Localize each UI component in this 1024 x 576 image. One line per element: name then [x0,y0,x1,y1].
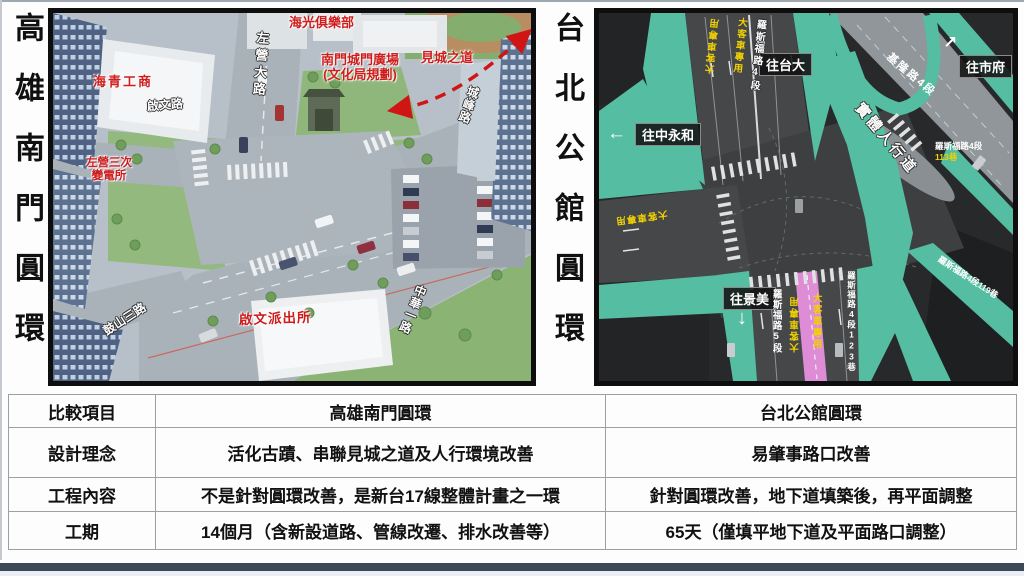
label-roosevelt-rd-5: 羅斯福路5段 [770,289,781,354]
west-arrow-icon: ← [607,123,626,144]
label-gate-plaza: 南門城門廣場(文化局規劃) [321,53,399,82]
label-lane-123: 羅斯福路4段123巷 [846,271,856,372]
label-gate-plaza-line1: 南門城門廣場 [321,52,399,67]
slide-bottom-margin [0,571,1024,576]
design-item: 設計理念 [9,428,156,478]
south-arrow-icon: ↓ [737,307,747,329]
direction-to-jingmei: 往景美 [723,287,776,310]
label-substation: 左營三次變電所 [86,157,132,183]
scope-kaohsiung: 不是針對圓環改善，是新台17線整體計畫之一環 [156,478,606,512]
table-header-row: 比較項目 高雄南門圓環 台北公館圓環 [9,395,1017,428]
direction-to-zhongyonghe: 往中永和 [635,123,701,146]
label-haiguang-club: 海光俱樂部 [289,16,354,31]
duration-taipei: 65天（僅填平地下道及平面路口調整） [606,512,1017,550]
comparison-table: 比較項目 高雄南門圓環 台北公館圓環 設計理念 活化古蹟、串聯見城之道及人行環境… [8,394,1017,550]
label-police-station: 啟文派出所 [239,310,312,328]
direction-to-ntu: 往台大 [759,53,812,76]
table-row-design: 設計理念 活化古蹟、串聯見城之道及人行環境改善 易肇事路口改善 [9,428,1017,478]
scope-item: 工程內容 [9,478,156,512]
label-haiqing-school: 海青工商 [93,75,153,90]
header-taipei: 台北公館圓環 [606,395,1017,428]
duration-kaohsiung: 14個月（含新設道路、管線改遷、排水改善等） [156,512,606,550]
label-lane-113: 羅斯福路4段113巷 [935,141,982,163]
design-kaohsiung: 活化古蹟、串聯見城之道及人行環境改善 [156,428,606,478]
slide-bottom-bar [0,563,1024,571]
label-bus-only-south-a: 大客車專用 [791,295,802,353]
direction-to-city-hall: 往市府 [959,55,1012,78]
right-panel-title: 台北公館圓環 [551,12,581,382]
left-panel-title: 高雄南門圓環 [11,12,41,382]
header-item: 比較項目 [9,395,156,428]
label-bus-only-south-b: 大客車專用 [810,293,821,351]
label-lane-113-road: 羅斯福路4段 [935,141,982,151]
table-row-duration: 工期 14個月（含新設道路、管線改遷、排水改善等） 65天（僅填平地下道及平面路… [9,512,1017,550]
design-taipei: 易肇事路口改善 [606,428,1017,478]
slide-top-border [0,0,1024,2]
duration-item: 工期 [9,512,156,550]
kaohsiung-render-image: 海光俱樂部 左營大路 南門城門廣場(文化局規劃) 見城之道 海青工商 啟文路 左… [48,8,536,386]
scope-taipei: 針對圓環改善，地下道填築後，再平面調整 [606,478,1017,512]
taipei-map-image: 往台大 ↗ 往市府 ← 往中永和 往景美 ↓ 羅斯福路4段 基隆路4段 實體人行… [594,8,1018,386]
label-substation-line2: 變電所 [92,170,127,182]
label-trail: 見城之道 [421,51,473,66]
header-kaohsiung: 高雄南門圓環 [156,395,606,428]
label-lane-113-number: 113巷 [935,152,957,162]
northeast-arrow-icon: ↗ [943,33,957,52]
slide: { "titles": { "left": "高雄南門圓環", "right":… [0,0,1024,576]
slide-left-border [0,0,2,560]
table-row-scope: 工程內容 不是針對圓環改善，是新台17線整體計畫之一環 針對圓環改善，地下道填築… [9,478,1017,512]
label-gate-plaza-line2: (文化局規劃) [323,67,397,82]
label-substation-line1: 左營三次 [86,157,132,169]
